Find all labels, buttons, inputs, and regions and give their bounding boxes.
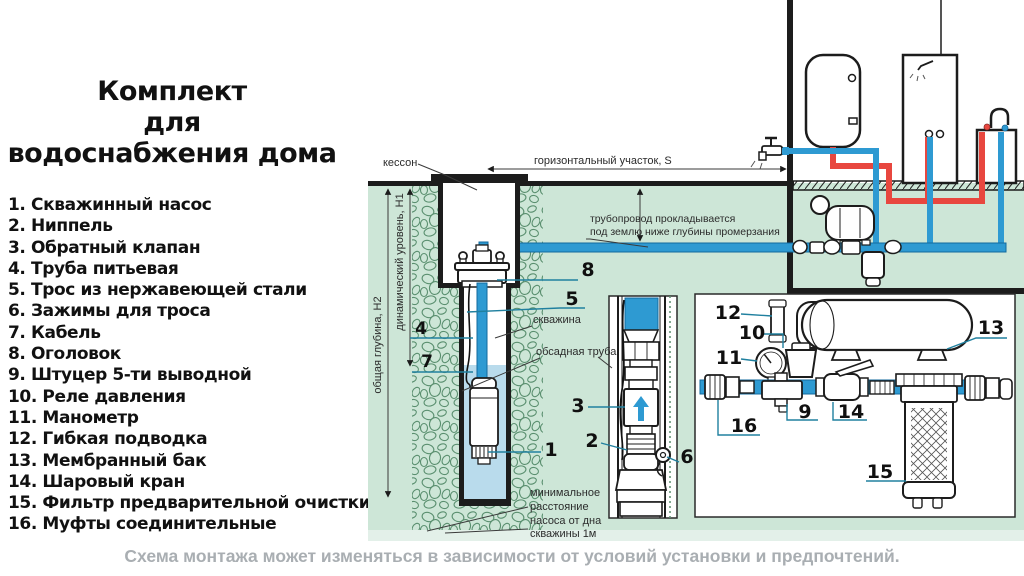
callout-1: 1 [544, 439, 557, 461]
check-valve [624, 389, 658, 426]
callout-15: 15 [867, 461, 893, 483]
prefilter [896, 374, 962, 508]
membrane-tank [802, 300, 972, 360]
callout-10: 10 [739, 322, 765, 344]
well-pump [470, 378, 498, 464]
pump-body-detail [616, 470, 666, 516]
pipeline-note-line2: под землю ниже глубины промерзания [590, 226, 780, 238]
svg-text:минимальное: минимальное [530, 487, 600, 499]
basement-wall [787, 186, 793, 293]
callout-12: 12 [715, 302, 741, 324]
horizontal-section-label: горизонтальный участок, S [534, 155, 672, 167]
callout-8: 8 [581, 259, 594, 281]
callout-7: 7 [421, 352, 433, 372]
callout-11: 11 [716, 347, 742, 369]
callout-4: 4 [415, 319, 427, 339]
coupling-right [965, 376, 1012, 400]
callout-6: 6 [680, 446, 693, 468]
caisson-label: кессон [383, 157, 417, 169]
callout-3: 3 [571, 395, 584, 417]
callout-5: 5 [565, 288, 578, 310]
installation-diagram: общая глубина, Н2 динамический уровень, … [0, 0, 1024, 576]
infographic-page: { "title": {"lines": ["Комплект", "для",… [0, 0, 1024, 576]
drop-pipe [477, 283, 487, 383]
callout-2: 2 [585, 430, 598, 452]
well-shaft [459, 283, 511, 506]
callout-13: 13 [978, 317, 1004, 339]
horizontal-section-dimension: горизонтальный участок, S [488, 155, 786, 169]
callout-14: 14 [838, 401, 864, 423]
svg-text:расстояние: расстояние [530, 501, 589, 513]
footer-note: Схема монтажа может изменяться в зависим… [0, 546, 1024, 567]
casing-pipe-label: обсадная труба [536, 346, 617, 358]
svg-text:скважины 1м: скважины 1м [530, 528, 596, 540]
pipeline-note-line1: трубопровод прокладывается [590, 213, 735, 225]
total-depth-label: общая глубина, Н2 [372, 296, 384, 393]
house-wall [787, 0, 793, 186]
callout-9: 9 [798, 401, 811, 423]
dynamic-level-label: динамический уровень, Н1 [394, 193, 406, 330]
main-supply-pipe [486, 243, 1006, 252]
station-filter [862, 252, 884, 286]
water-heater [806, 55, 860, 147]
basement-floor-line [787, 288, 1024, 294]
callout-16: 16 [731, 415, 757, 437]
svg-text:насоса от дна: насоса от дна [530, 515, 602, 527]
borehole-label: скважина [533, 314, 582, 326]
barb-fitting [870, 381, 894, 394]
nipple [627, 434, 655, 454]
